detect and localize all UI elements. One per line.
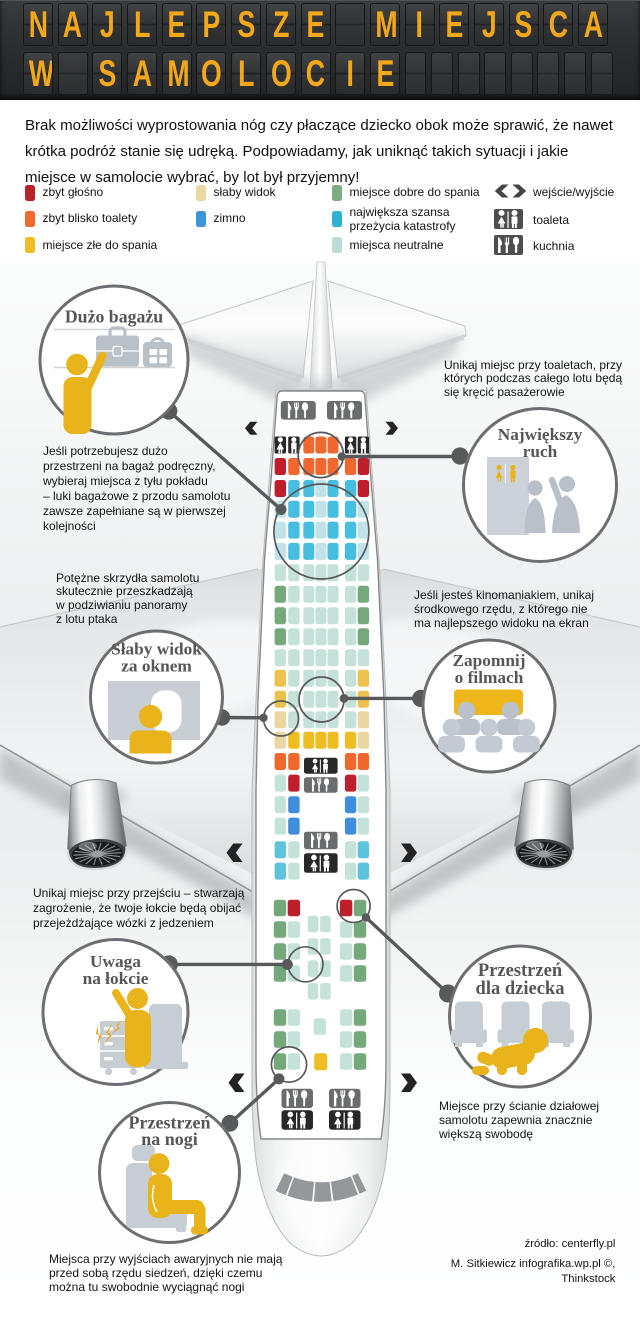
- svg-text:Przestrzeń: Przestrzeń: [478, 961, 563, 981]
- svg-text:Dużo bagażu: Dużo bagażu: [65, 307, 163, 327]
- svg-text:na łokcie: na łokcie: [83, 969, 149, 988]
- svg-text:za oknem: za oknem: [121, 657, 192, 676]
- svg-text:o filmach: o filmach: [455, 668, 524, 687]
- svg-text:dla dziecka: dla dziecka: [476, 979, 565, 999]
